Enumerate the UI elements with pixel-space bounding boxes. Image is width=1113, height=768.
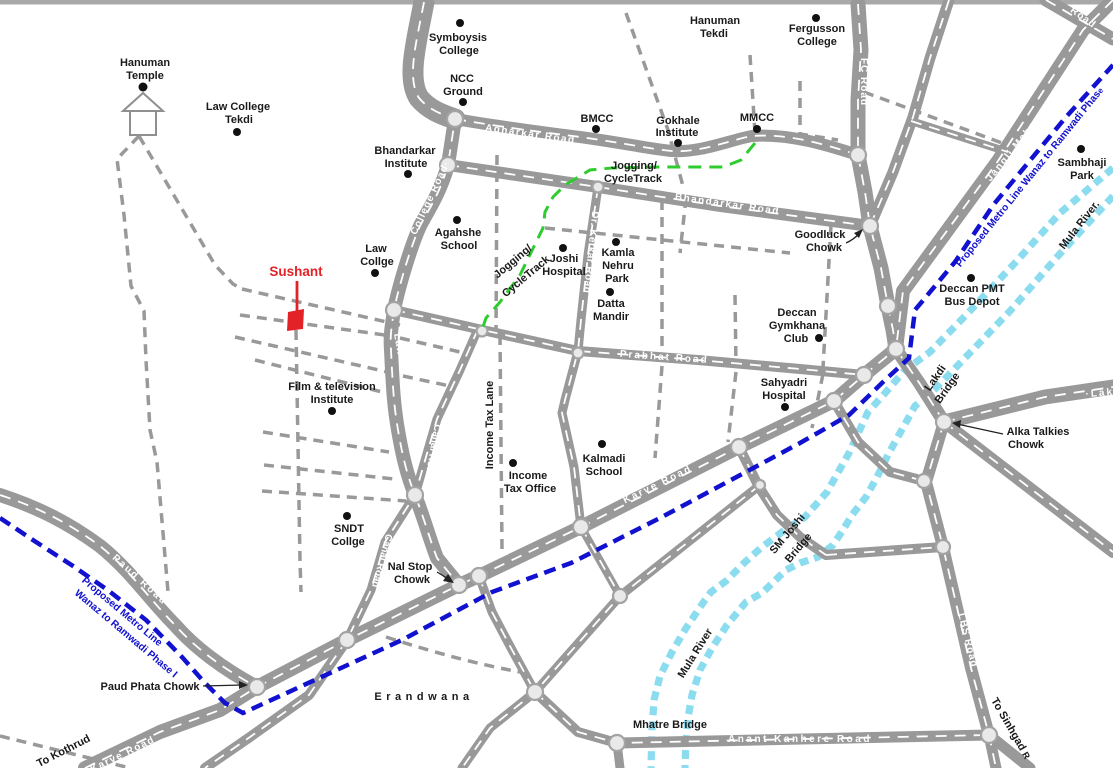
- svg-text:Deccan PMT: Deccan PMT: [939, 283, 1005, 295]
- svg-text:Datta: Datta: [597, 298, 625, 310]
- svg-text:College: College: [439, 45, 479, 57]
- svg-text:Institute: Institute: [385, 158, 428, 170]
- svg-text:Institute: Institute: [656, 127, 699, 139]
- svg-text:Gymkhana: Gymkhana: [769, 320, 826, 332]
- svg-text:Film & television: Film & television: [288, 381, 376, 393]
- svg-text:Paud Phata Chowk: Paud Phata Chowk: [100, 681, 200, 693]
- svg-text:Gokhale: Gokhale: [656, 115, 699, 127]
- svg-text:Law: Law: [365, 243, 387, 255]
- svg-text:Bus Depot: Bus Depot: [945, 296, 1000, 308]
- svg-text:Chowk: Chowk: [806, 242, 843, 254]
- svg-text:Hanuman: Hanuman: [690, 15, 740, 27]
- svg-text:Fergusson: Fergusson: [789, 23, 846, 35]
- svg-text:Temple: Temple: [126, 70, 164, 82]
- svg-text:Collge: Collge: [360, 256, 394, 268]
- svg-text:BMCC: BMCC: [581, 113, 614, 125]
- svg-text:Sambhaji: Sambhaji: [1058, 157, 1107, 169]
- svg-text:Anant Kanhere Road: Anant Kanhere Road: [728, 734, 872, 745]
- svg-text:FC Road: FC Road: [858, 58, 869, 106]
- svg-text:Symboysis: Symboysis: [429, 32, 487, 44]
- svg-text:Joshi: Joshi: [550, 253, 579, 265]
- svg-text:Goodluck: Goodluck: [795, 229, 847, 241]
- svg-text:MMCC: MMCC: [740, 112, 774, 124]
- svg-text:Kalmadi: Kalmadi: [583, 453, 626, 465]
- svg-text:Kamla: Kamla: [601, 247, 635, 259]
- svg-text:Tekdi: Tekdi: [225, 114, 253, 126]
- svg-text:SNDT: SNDT: [334, 523, 364, 535]
- svg-text:School: School: [441, 240, 478, 252]
- svg-text:Income: Income: [509, 470, 548, 482]
- svg-text:Nal Stop: Nal Stop: [388, 561, 433, 573]
- svg-text:Alka Talkies: Alka Talkies: [1007, 426, 1070, 438]
- svg-text:Income Tax Lane: Income Tax Lane: [484, 381, 496, 469]
- svg-text:Tekdi: Tekdi: [700, 28, 728, 40]
- svg-text:School: School: [586, 466, 623, 478]
- svg-text:·Lak: ·Lak: [1085, 387, 1113, 400]
- svg-text:Law College: Law College: [206, 101, 270, 113]
- svg-text:Park: Park: [605, 273, 630, 285]
- svg-text:Institute: Institute: [311, 394, 354, 406]
- svg-text:Mandir: Mandir: [593, 311, 630, 323]
- svg-text:Mhatre Bridge: Mhatre Bridge: [633, 719, 707, 731]
- svg-text:Chowk: Chowk: [394, 574, 431, 586]
- svg-text:Nehru: Nehru: [602, 260, 634, 272]
- svg-text:Sushant: Sushant: [269, 264, 323, 279]
- svg-text:Tax Office: Tax Office: [504, 483, 556, 495]
- svg-text:Erandwana: Erandwana: [374, 691, 473, 703]
- svg-text:Club: Club: [784, 333, 809, 345]
- svg-text:Sahyadri: Sahyadri: [761, 377, 807, 389]
- svg-text:Hospital: Hospital: [542, 266, 585, 278]
- svg-text:Deccan: Deccan: [777, 307, 816, 319]
- svg-text:NCC: NCC: [450, 73, 474, 85]
- svg-text:Park: Park: [1070, 170, 1095, 182]
- svg-text:CycleTrack: CycleTrack: [604, 173, 663, 185]
- svg-text:Hospital: Hospital: [762, 390, 805, 402]
- svg-text:College: College: [797, 36, 837, 48]
- svg-text:Chowk: Chowk: [1008, 439, 1045, 451]
- svg-text:Jogging/: Jogging/: [611, 160, 657, 172]
- svg-text:Ground: Ground: [443, 86, 483, 98]
- svg-text:Agahshe: Agahshe: [435, 227, 481, 239]
- svg-text:Hanuman: Hanuman: [120, 57, 170, 69]
- svg-text:Collge: Collge: [331, 536, 365, 548]
- svg-text:Bhandarkar: Bhandarkar: [374, 145, 436, 157]
